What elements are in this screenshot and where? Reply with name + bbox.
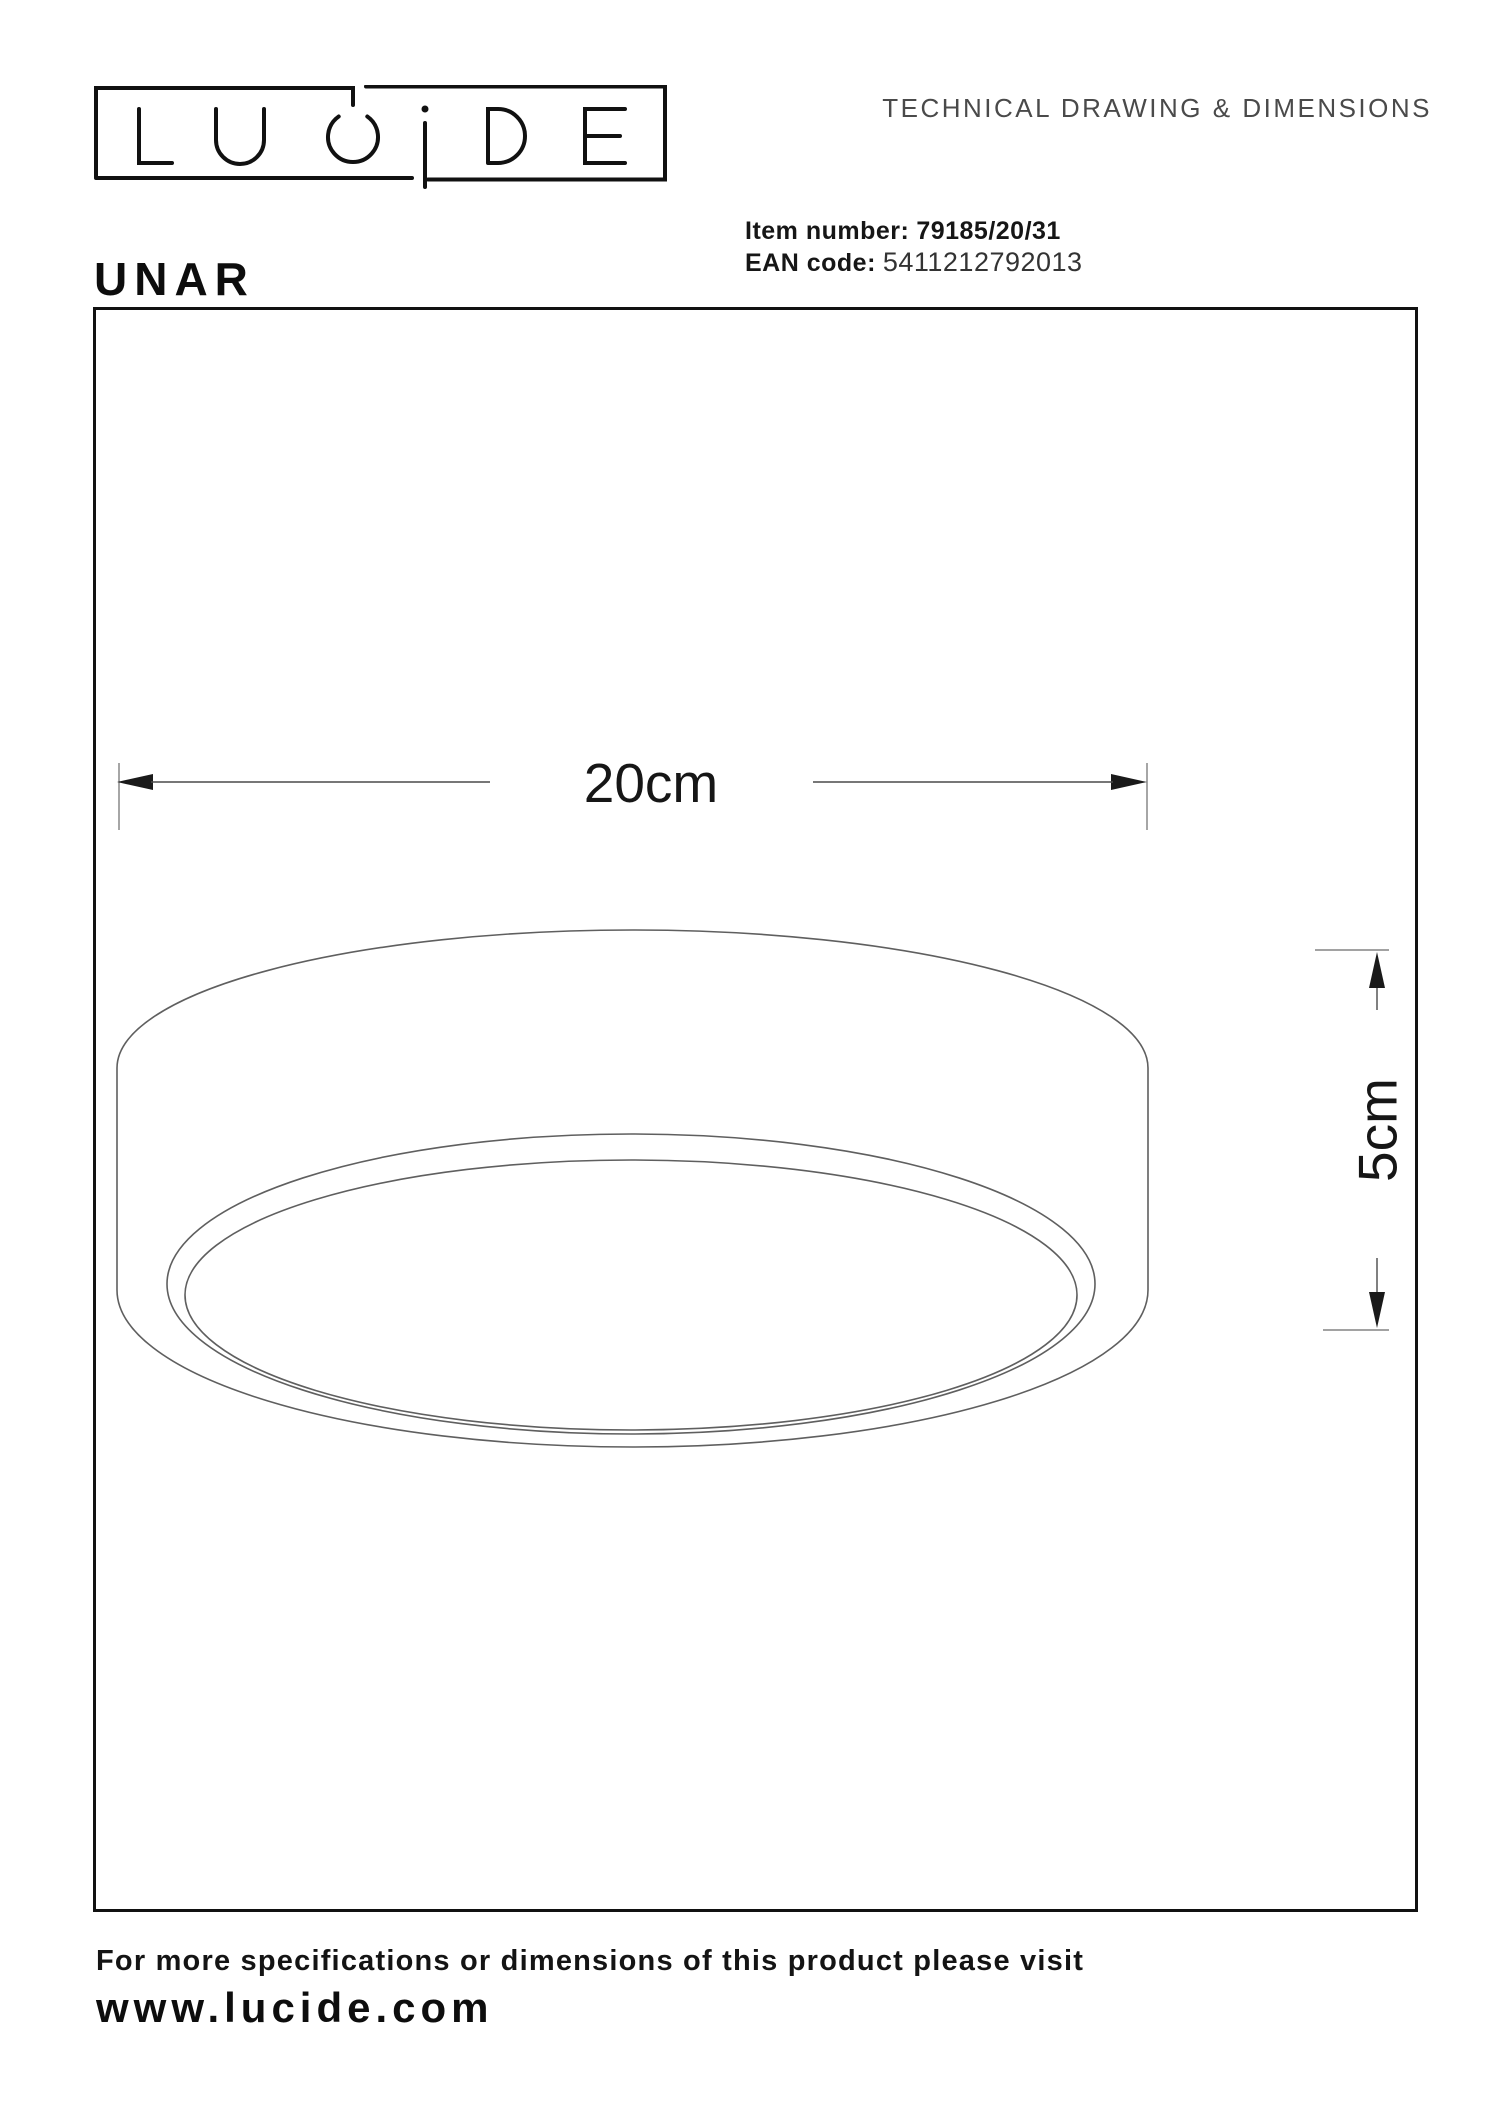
footer-note: For more specifications or dimensions of… [96, 1945, 1084, 1978]
ean-code-label: EAN code: [745, 249, 876, 277]
logo-letter-C [328, 117, 378, 163]
logo-frame-right-top [366, 87, 665, 180]
technical-drawing-area: 20cm 5cm [93, 307, 1418, 1912]
width-dimension: 20cm [117, 752, 1147, 830]
width-dim-left-arrowhead [117, 774, 153, 790]
logo-letter-E [585, 109, 625, 163]
item-number-line: Item number: 79185/20/31 [745, 216, 1083, 247]
width-dim-label: 20cm [584, 752, 719, 814]
width-dim-right-arrowhead [1111, 774, 1147, 790]
height-dim-down-arrowhead [1369, 1292, 1385, 1328]
logo-letter-L [139, 109, 172, 163]
product-name: UNAR [94, 252, 255, 306]
footer: For more specifications or dimensions of… [96, 1945, 1084, 2032]
logo-letter-D [488, 109, 525, 163]
lucide-logo: LUCIDE [94, 85, 667, 189]
lamp-body-outline [117, 930, 1148, 1290]
lamp-bottom-rim-arc [117, 1290, 1148, 1447]
item-number-label: Item number: [745, 217, 909, 245]
lucide-logo-graphic [94, 85, 667, 189]
ean-code-value: 5411212792013 [883, 247, 1083, 277]
drawing-border-box [95, 309, 1417, 1911]
height-dim-up-arrowhead [1369, 952, 1385, 988]
lamp-diffuser-ellipse [185, 1160, 1077, 1430]
product-identifiers: Item number: 79185/20/31 EAN code: 54112… [745, 216, 1083, 279]
technical-drawing: 20cm 5cm [93, 307, 1418, 1912]
page-title: TECHNICAL DRAWING & DIMENSIONS [882, 93, 1432, 124]
lamp-rim-opening-ellipse [167, 1134, 1095, 1434]
height-dim-label: 5cm [1346, 1078, 1408, 1182]
logo-letter-i-dot [422, 106, 429, 113]
item-number-value: 79185/20/31 [916, 217, 1061, 245]
ean-code-line: EAN code: 5411212792013 [745, 247, 1083, 279]
height-dimension: 5cm [1315, 950, 1408, 1330]
spec-sheet-page: LUCIDE TECHNICAL DRAWING & DIMENSIONS UN… [0, 0, 1500, 2122]
logo-letter-U [216, 109, 264, 164]
footer-website-link[interactable]: www.lucide.com [96, 1984, 494, 2032]
